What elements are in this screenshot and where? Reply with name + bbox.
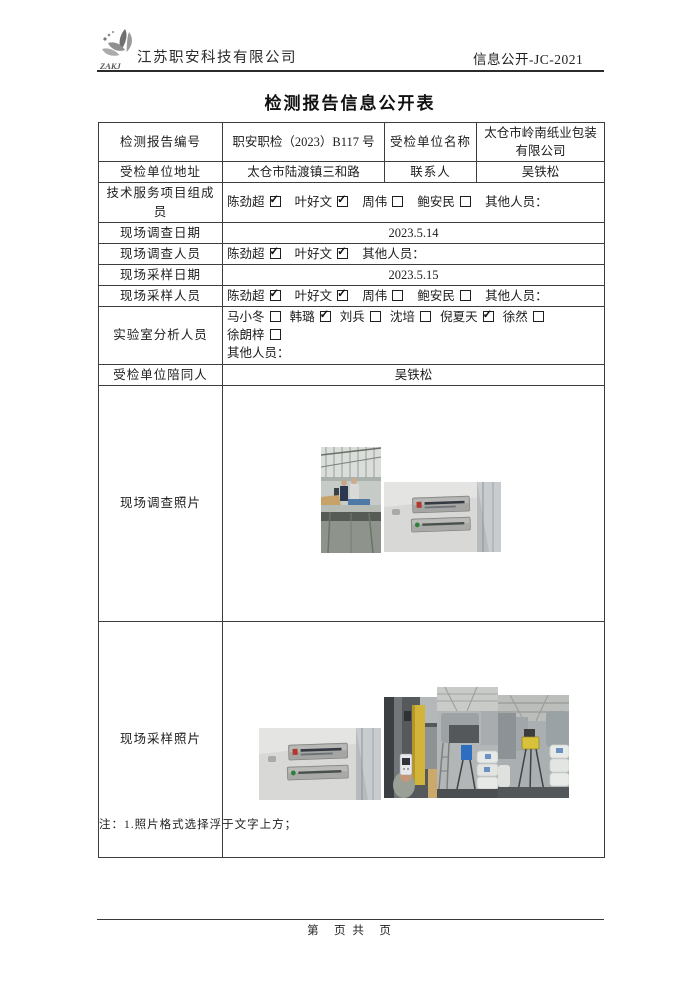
company-name: 江苏职安科技有限公司 — [137, 46, 297, 67]
member: 陈劲超 — [227, 289, 281, 303]
table-row: 实验室分析人员 马小冬 韩璐 刘兵 沈培 倪夏天 徐然 徐朗梓 其他人员： — [99, 307, 605, 364]
survey-photo-factory-people — [321, 447, 381, 553]
contact-label: 联系人 — [385, 162, 477, 183]
checkbox-unchecked-icon — [533, 311, 544, 322]
member-name: 刘兵 — [340, 310, 365, 324]
tech-team-label: 技术服务项目组成员 — [99, 183, 223, 222]
survey-staff-members: 陈劲超 叶好文 其他人员： — [223, 243, 605, 264]
member-name: 韩璐 — [290, 310, 315, 324]
table-row: 现场调查照片 — [99, 385, 605, 621]
member-name: 徐然 — [503, 310, 528, 324]
member: 叶好文 — [295, 247, 349, 261]
report-info-table: 检测报告编号 职安职检（2023）B117 号 受检单位名称 太仓市岭南纸业包装… — [98, 122, 605, 858]
checkbox-checked-icon — [337, 248, 348, 259]
other-staff-label: 其他人员： — [485, 289, 548, 303]
survey-photo-company-signs — [384, 482, 501, 552]
table-row: 现场调查人员 陈劲超 叶好文 其他人员： — [99, 243, 605, 264]
member: 鲍安民 — [417, 195, 471, 209]
table-row: 受检单位陪同人 吴铁松 — [99, 364, 605, 385]
footer-rule — [97, 919, 604, 920]
member: 刘兵 — [340, 310, 381, 324]
checkbox-checked-icon — [320, 311, 331, 322]
inspected-unit-name-value: 太仓市岭南纸业包装有限公司 — [477, 123, 605, 162]
checkbox-unchecked-icon — [460, 290, 471, 301]
inspected-unit-name-label: 受检单位名称 — [385, 123, 477, 162]
unit-address-label: 受检单位地址 — [99, 162, 223, 183]
tech-team-members: 陈劲超 叶好文 周伟 鲍安民 其他人员： — [223, 183, 605, 222]
member-name: 陈劲超 — [227, 247, 265, 261]
survey-photos-label: 现场调查照片 — [99, 385, 223, 621]
member-name: 周伟 — [362, 289, 387, 303]
checkbox-unchecked-icon — [370, 311, 381, 322]
member: 叶好文 — [295, 289, 349, 303]
other-staff-label: 其他人员： — [485, 195, 548, 209]
table-row: 现场调查日期 2023.5.14 — [99, 222, 605, 243]
sampling-photo-handheld-meter — [384, 697, 439, 798]
lab-staff-line2: 其他人员： — [227, 344, 600, 362]
member-name: 叶好文 — [295, 289, 333, 303]
table-row: 现场采样日期 2023.5.15 — [99, 264, 605, 285]
header-rule — [97, 70, 604, 72]
member-name: 鲍安民 — [417, 195, 455, 209]
member-name: 鲍安民 — [417, 289, 455, 303]
member-name: 陈劲超 — [227, 289, 265, 303]
member: 徐然 — [503, 310, 544, 324]
member: 周伟 — [362, 195, 403, 209]
other-staff-label: 其他人员： — [362, 247, 425, 261]
checkbox-unchecked-icon — [392, 196, 403, 207]
member: 马小冬 — [227, 310, 281, 324]
member: 韩璐 — [290, 310, 331, 324]
survey-date-value: 2023.5.14 — [223, 222, 605, 243]
member: 鲍安民 — [417, 289, 471, 303]
escort-value: 吴铁松 — [223, 364, 605, 385]
sampling-staff-members: 陈劲超 叶好文 周伟 鲍安民 其他人员： — [223, 286, 605, 307]
checkbox-unchecked-icon — [392, 290, 403, 301]
member: 倪夏天 — [440, 310, 494, 324]
table-row: 检测报告编号 职安职检（2023）B117 号 受检单位名称 太仓市岭南纸业包装… — [99, 123, 605, 162]
lab-staff-label: 实验室分析人员 — [99, 307, 223, 364]
member-name: 沈培 — [390, 310, 415, 324]
member-name: 陈劲超 — [227, 195, 265, 209]
document-code: 信息公开-JC-2021 — [473, 48, 583, 68]
sampling-photo-company-signs — [259, 728, 381, 800]
page-title: 检测报告信息公开表 — [0, 89, 700, 114]
member-name: 叶好文 — [295, 247, 333, 261]
checkbox-unchecked-icon — [270, 329, 281, 340]
member: 沈培 — [390, 310, 431, 324]
member-name: 周伟 — [362, 195, 387, 209]
member: 陈劲超 — [227, 247, 281, 261]
footnote: 注：1.照片格式选择浮于文字上方； — [99, 816, 297, 832]
survey-staff-label: 现场调查人员 — [99, 243, 223, 264]
page-number-text: 第 页 共 页 — [0, 922, 700, 938]
survey-photos-cell — [223, 385, 605, 621]
checkbox-checked-icon — [337, 196, 348, 207]
sampling-staff-label: 现场采样人员 — [99, 286, 223, 307]
checkbox-unchecked-icon — [420, 311, 431, 322]
sampling-date-label: 现场采样日期 — [99, 264, 223, 285]
member: 周伟 — [362, 289, 403, 303]
member: 叶好文 — [295, 195, 349, 209]
document-page: ZAKJ 江苏职安科技有限公司 信息公开-JC-2021 检测报告信息公开表 检… — [0, 0, 700, 994]
table-row: 现场采样人员 陈劲超 叶好文 周伟 鲍安民 其他人员： — [99, 286, 605, 307]
escort-label: 受检单位陪同人 — [99, 364, 223, 385]
checkbox-unchecked-icon — [460, 196, 471, 207]
sampling-photo-yellow-sampler — [498, 695, 569, 798]
survey-date-label: 现场调查日期 — [99, 222, 223, 243]
member-name: 徐朗梓 — [227, 328, 265, 342]
checkbox-checked-icon — [483, 311, 494, 322]
member-name: 马小冬 — [227, 310, 265, 324]
member: 徐朗梓 — [227, 328, 281, 342]
checkbox-checked-icon — [337, 290, 348, 301]
checkbox-checked-icon — [270, 196, 281, 207]
table-row: 技术服务项目组成员 陈劲超 叶好文 周伟 鲍安民 其他人员： — [99, 183, 605, 222]
member: 陈劲超 — [227, 195, 281, 209]
member-name: 叶好文 — [295, 195, 333, 209]
table-row: 受检单位地址 太仓市陆渡镇三和路 联系人 吴铁松 — [99, 162, 605, 183]
sampling-photo-blue-sampler — [437, 687, 498, 798]
checkbox-checked-icon — [270, 248, 281, 259]
checkbox-unchecked-icon — [270, 311, 281, 322]
sampling-date-value: 2023.5.15 — [223, 264, 605, 285]
report-number-label: 检测报告编号 — [99, 123, 223, 162]
report-number-value: 职安职检（2023）B117 号 — [223, 123, 385, 162]
lab-staff-members: 马小冬 韩璐 刘兵 沈培 倪夏天 徐然 徐朗梓 其他人员： — [223, 307, 605, 364]
unit-address-value: 太仓市陆渡镇三和路 — [223, 162, 385, 183]
checkbox-checked-icon — [270, 290, 281, 301]
member-name: 倪夏天 — [440, 310, 478, 324]
contact-value: 吴铁松 — [477, 162, 605, 183]
lab-staff-line1: 马小冬 韩璐 刘兵 沈培 倪夏天 徐然 徐朗梓 — [227, 308, 600, 344]
